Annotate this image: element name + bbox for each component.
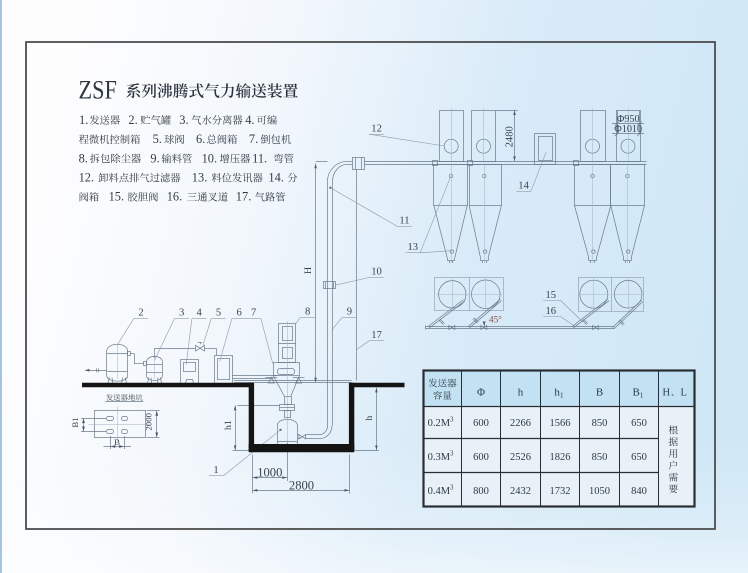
svg-text:17: 17 bbox=[371, 330, 382, 341]
svg-text:2526: 2526 bbox=[510, 452, 531, 463]
svg-text:2.: 2. bbox=[128, 113, 137, 127]
svg-text:2480: 2480 bbox=[504, 126, 515, 147]
svg-text:800: 800 bbox=[473, 486, 489, 497]
svg-text:9.: 9. bbox=[150, 151, 159, 165]
svg-text:L: L bbox=[681, 387, 687, 398]
svg-text:10.: 10. bbox=[202, 151, 218, 165]
svg-text:850: 850 bbox=[592, 418, 608, 429]
svg-text:840: 840 bbox=[631, 486, 647, 497]
svg-text:12.: 12. bbox=[79, 171, 95, 185]
svg-text:Φ: Φ bbox=[477, 386, 485, 398]
svg-text:B: B bbox=[596, 386, 603, 398]
svg-text:5.: 5. bbox=[153, 132, 162, 146]
svg-text:12: 12 bbox=[371, 123, 382, 134]
svg-text:10: 10 bbox=[371, 267, 382, 278]
svg-text:17.: 17. bbox=[236, 190, 252, 204]
svg-text:15.: 15. bbox=[109, 190, 125, 204]
svg-text:h: h bbox=[364, 416, 375, 421]
svg-text:1.: 1. bbox=[79, 113, 88, 127]
svg-text:6.: 6. bbox=[196, 132, 205, 146]
svg-text:11.: 11. bbox=[252, 151, 267, 165]
svg-text:14.: 14. bbox=[268, 171, 284, 185]
svg-text:7: 7 bbox=[251, 308, 256, 319]
svg-text:1000: 1000 bbox=[257, 465, 282, 479]
svg-text:8: 8 bbox=[305, 307, 310, 318]
svg-text:2432: 2432 bbox=[510, 486, 531, 497]
svg-text:3.: 3. bbox=[179, 113, 188, 127]
svg-text:7.: 7. bbox=[249, 132, 258, 146]
svg-text:2266: 2266 bbox=[510, 418, 531, 429]
svg-text:650: 650 bbox=[631, 418, 647, 429]
svg-text:9: 9 bbox=[347, 307, 352, 318]
svg-text:600: 600 bbox=[473, 418, 489, 429]
svg-text:ZSF: ZSF bbox=[79, 76, 117, 105]
svg-text:650: 650 bbox=[631, 452, 647, 463]
svg-text:11: 11 bbox=[399, 215, 409, 226]
svg-text:1826: 1826 bbox=[550, 452, 571, 463]
svg-text:600: 600 bbox=[473, 452, 489, 463]
svg-text:2: 2 bbox=[138, 308, 143, 319]
svg-text:B1: B1 bbox=[70, 417, 80, 427]
svg-text:13: 13 bbox=[408, 242, 419, 253]
svg-text:16: 16 bbox=[546, 306, 557, 317]
svg-text:3: 3 bbox=[179, 308, 184, 319]
svg-text:1732: 1732 bbox=[550, 486, 571, 497]
svg-text:6: 6 bbox=[237, 308, 242, 319]
svg-text:4: 4 bbox=[197, 308, 203, 319]
svg-text:15: 15 bbox=[546, 290, 557, 301]
svg-text:4.: 4. bbox=[245, 113, 254, 127]
svg-text:850: 850 bbox=[592, 452, 608, 463]
svg-text:16.: 16. bbox=[167, 190, 183, 204]
svg-text:h1: h1 bbox=[223, 420, 234, 430]
svg-text:1566: 1566 bbox=[550, 418, 571, 429]
svg-text:H: H bbox=[663, 387, 671, 398]
svg-text:45°: 45° bbox=[489, 315, 502, 325]
svg-text:14: 14 bbox=[518, 180, 529, 191]
svg-text:2800: 2800 bbox=[289, 478, 314, 492]
svg-text:1: 1 bbox=[213, 465, 218, 476]
svg-text:8.: 8. bbox=[79, 151, 88, 165]
svg-text:13.: 13. bbox=[192, 171, 208, 185]
svg-text:5: 5 bbox=[216, 308, 221, 319]
svg-text:1050: 1050 bbox=[589, 486, 610, 497]
svg-text:h: h bbox=[518, 386, 524, 398]
svg-text:2000: 2000 bbox=[144, 412, 154, 430]
svg-text:B: B bbox=[114, 437, 120, 447]
svg-text:Φ1010: Φ1010 bbox=[614, 124, 642, 135]
svg-text:H: H bbox=[303, 267, 314, 274]
